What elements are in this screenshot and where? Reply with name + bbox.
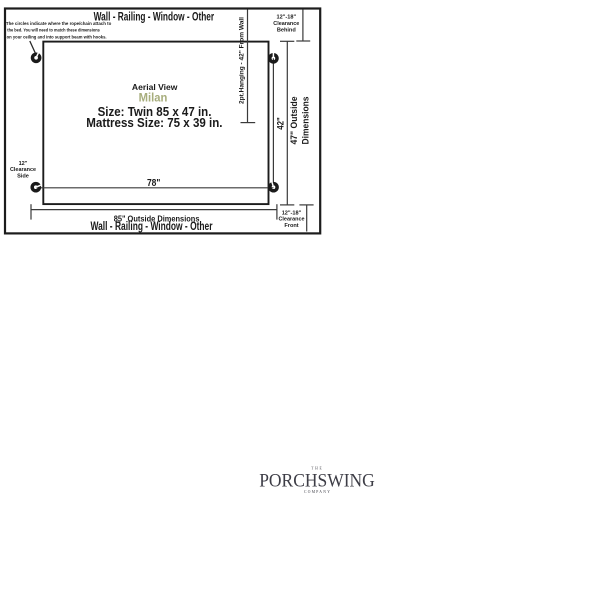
svg-text:The circles indicate where the: The circles indicate where the rope/chai…	[6, 21, 111, 27]
svg-text:Dimensions: Dimensions	[300, 97, 310, 145]
svg-text:2pt.Hanging - 42" From Wall: 2pt.Hanging - 42" From Wall	[239, 17, 246, 104]
svg-text:Behind: Behind	[277, 28, 297, 34]
svg-text:on your ceiling and into suppo: on your ceiling and into support beam wi…	[7, 35, 107, 41]
svg-text:12": 12"	[19, 161, 28, 167]
svg-text:COMPANY: COMPANY	[304, 490, 331, 494]
svg-text:Clearance: Clearance	[10, 167, 36, 173]
svg-text:12"-18": 12"-18"	[276, 14, 296, 20]
svg-text:12"-18": 12"-18"	[282, 210, 302, 216]
svg-text:78": 78"	[147, 178, 161, 189]
svg-text:Clearance: Clearance	[273, 21, 299, 27]
svg-text:Aerial View: Aerial View	[132, 83, 178, 92]
svg-text:Clearance: Clearance	[279, 217, 305, 223]
svg-text:PORCHSWING: PORCHSWING	[259, 470, 375, 491]
svg-text:Wall - Railing - Window - Othe: Wall - Railing - Window - Other	[94, 12, 215, 24]
svg-text:47" Outside: 47" Outside	[289, 97, 299, 145]
svg-text:Mattress Size: 75 x 39 in.: Mattress Size: 75 x 39 in.	[86, 116, 222, 130]
svg-text:Side: Side	[17, 174, 29, 180]
svg-text:Front: Front	[284, 223, 298, 229]
svg-text:Wall - Railing - Window - Othe: Wall - Railing - Window - Other	[91, 221, 213, 233]
svg-text:the bed. You will need to matc: the bed. You will need to match these di…	[7, 28, 100, 34]
svg-text:42": 42"	[276, 117, 286, 130]
svg-text:Milan: Milan	[139, 93, 168, 105]
